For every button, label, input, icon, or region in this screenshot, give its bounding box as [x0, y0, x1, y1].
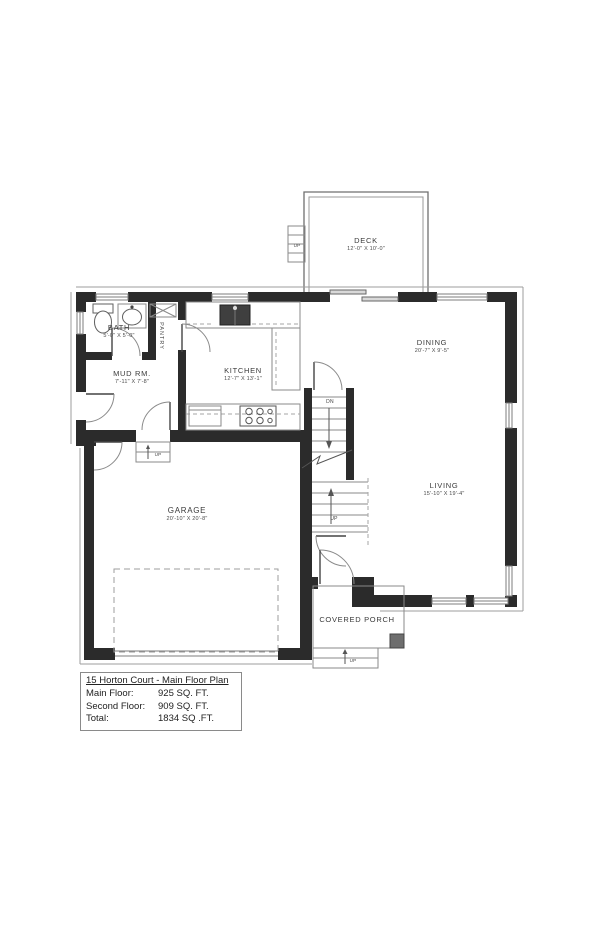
floor-plan-page: DECK 12'-0" X 10'-0" DINING 20'-7" X 9'-… [0, 0, 600, 927]
garage-name: GARAGE [166, 506, 207, 515]
mud-room-dims: 7'-11" X 7'-8" [113, 379, 151, 385]
second-floor-value: 909 SQ. FT. [158, 701, 236, 714]
stairs-lower-run [312, 478, 368, 545]
kitchen-dims: 12'-7" X 13'-1" [224, 376, 262, 382]
title-block: 15 Horton Court - Main Floor Plan Main F… [80, 672, 242, 731]
living-name: LIVING [423, 481, 464, 490]
stairs-down-arrowhead [326, 441, 332, 449]
stairs-dn-label: DN [326, 399, 334, 405]
porch-up-label: UP [350, 658, 357, 663]
total-label: Total: [86, 713, 158, 726]
deck-name: DECK [347, 236, 385, 245]
second-floor-label: Second Floor: [86, 701, 158, 714]
garage-label: GARAGE 20'-10" X 20'-8" [166, 506, 207, 522]
pantry-label: PANTRY [158, 322, 164, 350]
deck-dims: 12'-0" X 10'-0" [347, 246, 385, 252]
stairs-up-label: UP [330, 516, 338, 522]
bath-name: BATH [103, 323, 134, 332]
siding-trim-lines [71, 287, 523, 664]
main-floor-label: Main Floor: [86, 688, 158, 701]
bath-dims: 5'-0" X 5'-0" [103, 333, 134, 339]
total-value: 1834 SQ .FT. [158, 713, 236, 726]
covered-porch-name: COVERED PORCH [319, 615, 394, 624]
second-floor-row: Second Floor: 909 SQ. FT. [86, 701, 236, 714]
total-row: Total: 1834 SQ .FT. [86, 713, 236, 726]
dining-name: DINING [415, 338, 450, 347]
plan-title: 15 Horton Court - Main Floor Plan [86, 675, 236, 686]
living-label: LIVING 15'-10" X 19'-4" [423, 481, 464, 497]
deck-up-label: UP [294, 243, 301, 248]
mud-room-label: MUD RM. 7'-11" X 7'-8" [113, 369, 151, 385]
dining-dims: 20'-7" X 9'-5" [415, 348, 450, 354]
kitchen-sink [220, 305, 250, 325]
living-dims: 15'-10" X 19'-4" [423, 491, 464, 497]
stairs-up-arrowhead [328, 488, 334, 496]
walls [76, 292, 517, 660]
dining-label: DINING 20'-7" X 9'-5" [415, 338, 450, 354]
range-cooktop [240, 406, 276, 426]
garage-steps [136, 442, 170, 462]
covered-porch-label: COVERED PORCH [319, 615, 394, 624]
kitchen-name: KITCHEN [224, 366, 262, 375]
floor-plan-drawing [0, 0, 600, 927]
bath-label: BATH 5'-0" X 5'-0" [103, 323, 134, 339]
garage-door-track-dashed [114, 569, 278, 652]
deck-label: DECK 12'-0" X 10'-0" [347, 236, 385, 252]
mud-room-name: MUD RM. [113, 369, 151, 378]
garage-up-label: UP [155, 452, 162, 457]
main-floor-row: Main Floor: 925 SQ. FT. [86, 688, 236, 701]
door-swings [86, 324, 354, 584]
kitchen-label: KITCHEN 12'-7" X 13'-1" [224, 366, 262, 382]
garage-dims: 20'-10" X 20'-8" [166, 516, 207, 522]
sliding-door [330, 290, 398, 301]
main-floor-value: 925 SQ. FT. [158, 688, 236, 701]
